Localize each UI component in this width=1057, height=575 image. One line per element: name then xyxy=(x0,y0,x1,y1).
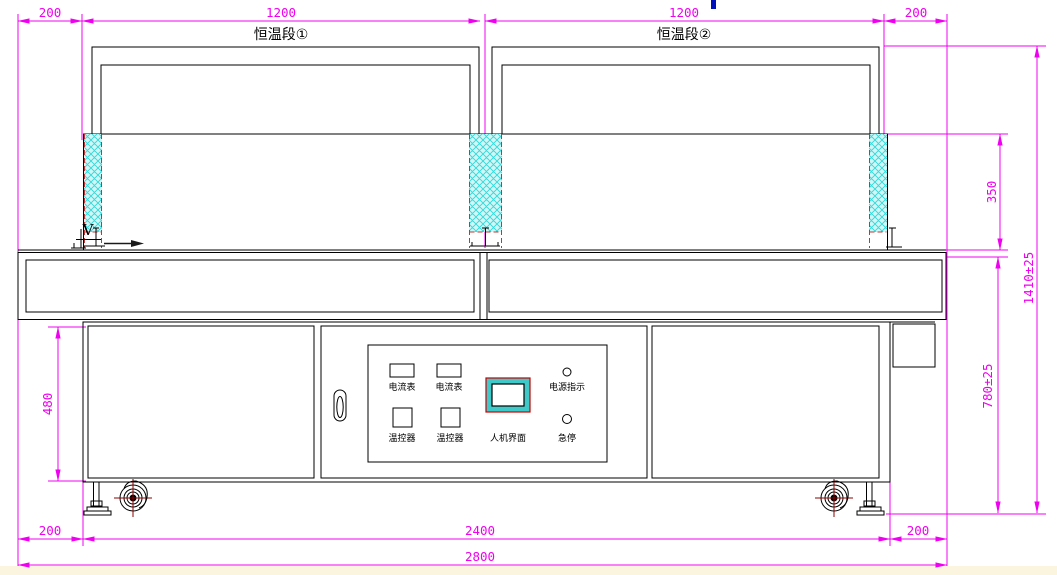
hmi-screen xyxy=(486,378,530,412)
ammeter-label-2: 电流表 xyxy=(435,381,462,393)
dim-cabinet-height: 480 xyxy=(40,393,55,416)
dim-table-height: 780±25 xyxy=(980,363,995,408)
dim-top-section1-width: 1200 xyxy=(266,5,296,20)
temp-controller-label-1: 温控器 xyxy=(388,432,415,444)
power-indicator-label: 电源指示 xyxy=(549,381,585,393)
drawing-canvas: 200 1200 1200 200 350 1410±25 780±25 480… xyxy=(0,0,1057,575)
dim-top-right-overhang: 200 xyxy=(905,5,928,20)
dim-overall-width: 2800 xyxy=(465,549,495,564)
ammeter-label-1: 电流表 xyxy=(388,381,415,393)
section2-label: 恒温段② xyxy=(657,27,712,43)
dim-cabinet-width: 2400 xyxy=(465,523,495,538)
engineering-drawing: 200 1200 1200 200 350 1410±25 780±25 480… xyxy=(0,0,1057,575)
cursor-artifact xyxy=(711,0,716,9)
dim-hood-height: 350 xyxy=(984,181,999,204)
temp-controller-label-2: 温控器 xyxy=(436,432,463,444)
section1-label: 恒温段① xyxy=(254,27,309,43)
dim-top-section2-width: 1200 xyxy=(669,5,699,20)
footer-strip xyxy=(0,566,1057,575)
dim-bottom-left-overhang: 200 xyxy=(39,523,62,538)
dim-bottom-right-overhang: 200 xyxy=(907,523,930,538)
view-label: V xyxy=(82,221,95,239)
insulation-column-right xyxy=(869,134,887,248)
hmi-label: 人机界面 xyxy=(490,432,526,444)
emergency-stop-label: 急停 xyxy=(558,432,576,444)
dim-overall-height: 1410±25 xyxy=(1021,252,1036,305)
paper-background xyxy=(0,0,1057,575)
dim-top-left-overhang: 200 xyxy=(39,5,62,20)
